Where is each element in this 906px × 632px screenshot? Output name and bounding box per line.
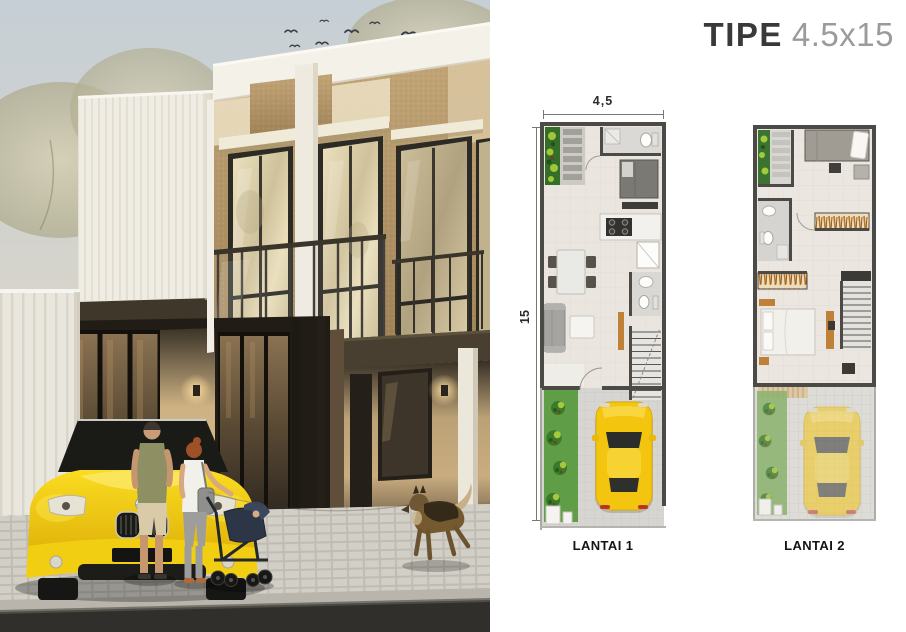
wood-cabinet — [618, 312, 624, 350]
backyard-garden — [545, 127, 585, 185]
carport — [544, 390, 656, 524]
coffee-table — [570, 316, 594, 338]
master-bed — [759, 299, 815, 365]
planter — [546, 506, 560, 524]
title-type: TIPE — [704, 16, 783, 53]
study-desk — [826, 311, 835, 349]
floor-mat — [842, 363, 855, 374]
planter — [759, 499, 771, 515]
dimension-tick — [663, 110, 664, 119]
carport-view-below — [757, 391, 864, 518]
balcony-garden — [758, 130, 794, 187]
car-top-view-faded — [800, 407, 864, 518]
sofa — [544, 304, 565, 352]
floor-plan-1 — [540, 122, 666, 530]
utility-sink — [637, 242, 659, 268]
floor2-label: LANTAI 2 — [753, 538, 876, 553]
dimension-tick — [543, 110, 544, 119]
page-title: TIPE4.5x15 — [704, 16, 894, 54]
car-top-view — [592, 402, 656, 513]
floor1-label: LANTAI 1 — [540, 538, 666, 553]
dimension-width-label: 4,5 — [540, 94, 666, 108]
bathroom-3 — [758, 198, 792, 261]
title-size: 4.5x15 — [792, 16, 894, 53]
bathroom-1 — [600, 127, 661, 156]
dimension-height-line — [536, 127, 537, 521]
staircase-2 — [840, 271, 871, 349]
wardrobe-2 — [758, 271, 807, 289]
dimension-width-line — [543, 114, 664, 115]
floor-plan-2 — [753, 125, 876, 523]
bathroom-2 — [629, 272, 661, 316]
carport-columns — [292, 318, 344, 525]
dimension-height-label: 15 — [518, 297, 532, 337]
house-exterior-render — [0, 0, 490, 632]
planter — [563, 512, 572, 524]
brochure-page: TIPE4.5x15 4,5 15 — [0, 0, 906, 632]
kitchen-counter — [600, 214, 661, 240]
planter — [774, 505, 782, 515]
front-terrace — [544, 364, 584, 386]
